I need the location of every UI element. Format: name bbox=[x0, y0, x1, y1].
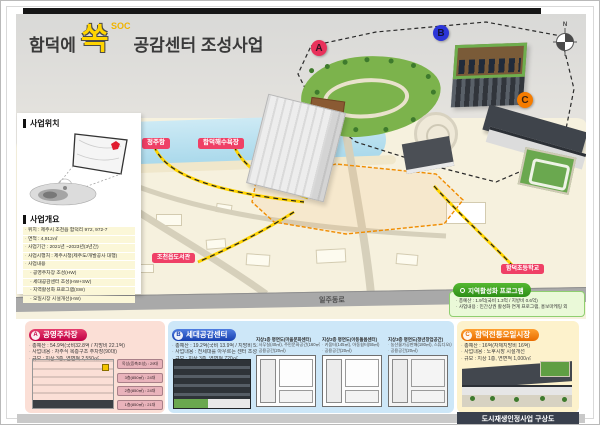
overview-sub-item: 오일시장 시설개선(HW) bbox=[23, 296, 135, 304]
map-label-beach: 함덕해수욕장 bbox=[198, 138, 244, 149]
plan-line: 공용공간(20㎡) bbox=[256, 348, 320, 353]
title-soc: SOC bbox=[111, 21, 131, 31]
detail-line: 사업내용 : 전세대를 아우르는 센터 조성 bbox=[172, 349, 258, 355]
sidebar: 사업위치 사업개요 위치 : 제주시 조천읍 함덕리 972, 972-7 면적… bbox=[17, 113, 141, 294]
plan-column-2: 지상2층 평면도(아동돌봄센터) 키움터(145㎡), 아동쉼터(55㎡) 공용… bbox=[322, 337, 386, 407]
plan-column-1: 지상1층 평면도(마을문화센터) 사무실(40㎡), 주민문화공간(160㎡) … bbox=[256, 337, 320, 407]
panel-market-title: 함덕전통오일시장 bbox=[475, 331, 530, 339]
panel-center: B 세대공감센터 총예산 : 19.2억(국비 13.9억 / 지방비 5.3억… bbox=[168, 321, 454, 413]
program-line: 사업내용 : 민간상권 활성화 연계 프로그램, 홍보마케팅 외 bbox=[456, 304, 580, 310]
plan-line: 공용공간(20㎡) bbox=[388, 348, 452, 353]
plan-line: 사무실(40㎡), 주민문화공간(160㎡) bbox=[256, 342, 320, 347]
floor-plan-2 bbox=[322, 355, 382, 407]
overview-item: 사업내용 bbox=[23, 261, 135, 269]
panel-market-badge: C bbox=[463, 331, 472, 340]
rooftop-garden bbox=[453, 43, 527, 80]
location-map-graphic bbox=[23, 128, 135, 208]
plan-line: 농산물가공판매(180㎡), 스튜디오(40㎡) bbox=[388, 342, 452, 347]
panel-market-header: C 함덕전통오일시장 bbox=[461, 329, 539, 341]
overview-item: 사업시행처 : 제주시청(제주도/개발공사 대행) bbox=[23, 253, 135, 261]
floor-tag: 2층(850㎡) : 24대 bbox=[117, 386, 163, 396]
plan-column-3: 지상3층 평면도(청년창업공간) 농산물가공판매(180㎡), 스튜디오(40㎡… bbox=[388, 337, 452, 407]
program-box-header: 지역활성화 프로그램 bbox=[453, 283, 531, 297]
marker-c: C bbox=[517, 92, 533, 108]
overview-sub-item: 지역활성화 프로그램(SW) bbox=[23, 287, 135, 295]
floor-plan-1 bbox=[256, 355, 316, 407]
market-building-image bbox=[462, 361, 572, 407]
page-title: 함덕에 쏙 SOC 공감센터 조성사업 bbox=[29, 27, 263, 54]
panel-parking-badge: A bbox=[31, 331, 40, 340]
overview-heading: 사업개요 bbox=[23, 215, 135, 224]
panel-parking-title: 공영주차장 bbox=[43, 331, 78, 339]
floor-tag: 3층(850㎡) : 24대 bbox=[117, 373, 163, 383]
market-details: 총예산 : 16억(자체지방비 16억) 사업내용 : 노후시장 시설개선 규모… bbox=[461, 343, 575, 362]
plan-line: 키움터(145㎡), 아동쉼터(55㎡) bbox=[322, 342, 386, 347]
title-prefix: 함덕에 bbox=[29, 37, 76, 54]
title-highlight: 쏙 bbox=[81, 23, 109, 56]
title-highlight-wrap: 쏙 SOC bbox=[81, 27, 129, 54]
community-center-building bbox=[451, 43, 527, 108]
floor-tag: 1층(850㎡) : 21대 bbox=[117, 400, 163, 410]
parking-sign bbox=[102, 364, 109, 371]
floor-tag: 옥상(증축조성) : 29대 bbox=[117, 359, 163, 369]
overview-sub-item: 공영주차장 조성(HW) bbox=[23, 270, 135, 278]
marker-a: A bbox=[311, 40, 327, 56]
panel-center-header: B 세대공감센터 bbox=[172, 329, 236, 341]
market-ground bbox=[462, 395, 572, 407]
project-board: 일주동로 정주항 함덕해수욕장 조천읍도서관 함덕초등학교 A B C N 지역… bbox=[0, 0, 600, 425]
building-facade bbox=[451, 77, 525, 108]
overview-sub-item: 세대공감센터 조성(HW+SW) bbox=[23, 279, 135, 287]
panel-center-badge: B bbox=[174, 331, 183, 340]
plan-line: 공용공간(20㎡) bbox=[322, 348, 386, 353]
road-label: 일주동로 bbox=[319, 295, 345, 305]
trees bbox=[470, 396, 475, 401]
parking-floor-tags: 옥상(증축조성) : 29대 3층(850㎡) : 24대 2층(850㎡) :… bbox=[117, 359, 163, 413]
parking-building-image bbox=[32, 359, 114, 409]
compass-icon: N bbox=[551, 22, 579, 60]
panel-parking: A 공영주차장 총예산 : 54.9억(국비32.8억 / 지방비 22.1억)… bbox=[25, 321, 165, 413]
footer-label: 도시재생인정사업 구상도 bbox=[457, 412, 579, 425]
marker-b: B bbox=[433, 25, 449, 41]
location-heading: 사업위치 bbox=[23, 119, 135, 128]
center-building-image bbox=[173, 359, 251, 409]
panel-market: C 함덕전통오일시장 총예산 : 16억(자체지방비 16억) 사업내용 : 노… bbox=[457, 321, 579, 413]
overview-item: 위치 : 제주시 조천읍 함덕리 972, 972-7 bbox=[23, 227, 135, 235]
overview-list: 위치 : 제주시 조천읍 함덕리 972, 972-7 면적 : 4,912㎡ … bbox=[23, 227, 135, 303]
program-box-title: 지역활성화 프로그램 bbox=[468, 285, 524, 295]
overview-item: 면적 : 4,912㎡ bbox=[23, 236, 135, 244]
overview-item: 사업기간 : 2021년 ~2023년(3년간) bbox=[23, 244, 135, 252]
panel-parking-header: A 공영주차장 bbox=[29, 329, 87, 341]
map-label-port: 정주항 bbox=[142, 138, 170, 149]
market-wall bbox=[462, 385, 572, 395]
compass-rose bbox=[552, 28, 578, 56]
ring-icon bbox=[460, 288, 465, 293]
map-label-school: 함덕초등학교 bbox=[501, 264, 544, 274]
program-box: 지역활성화 프로그램 총예산 : 1.9억(국비 1.3억 / 지방비 0.6억… bbox=[449, 283, 585, 317]
map-label-library: 조천읍도서관 bbox=[152, 253, 195, 263]
title-suffix: 공감센터 조성사업 bbox=[134, 37, 264, 54]
panel-center-title: 세대공감센터 bbox=[186, 331, 227, 339]
floor-plan-3 bbox=[388, 355, 448, 407]
market-green-roof bbox=[540, 361, 570, 377]
